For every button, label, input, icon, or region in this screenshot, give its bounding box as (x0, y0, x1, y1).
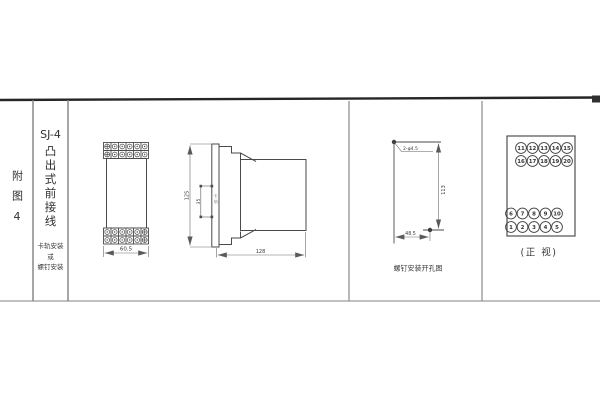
svg-text:14: 14 (552, 146, 560, 152)
svg-text:7: 7 (521, 211, 525, 217)
vertical-dimension: 113 (439, 144, 448, 229)
terminal-view-caption: (正 视) (521, 247, 558, 259)
rail-dim-label: 35 (196, 199, 202, 205)
svg-text:12: 12 (529, 146, 537, 152)
svg-text:17: 17 (529, 159, 537, 165)
figure-index-label: 附图4 (9, 170, 25, 232)
mounting-note-line: 或 (33, 252, 68, 263)
depth-dim-label: 128 (256, 249, 266, 255)
svg-text:3: 3 (532, 225, 536, 231)
svg-text:19: 19 (552, 159, 560, 165)
svg-text:2: 2 (521, 225, 525, 231)
drill-plan-caption: 螺钉安装开孔图 (394, 264, 443, 273)
svg-text:10: 10 (553, 211, 561, 217)
side-view-drawing: 125 35 卡 轨 128 (185, 144, 307, 258)
horizontal-dimension: 48.5 (395, 231, 430, 241)
scanned-figure-page: 60.5 125 (0, 0, 600, 400)
width-dim-label: 60.5 (120, 247, 133, 253)
svg-text:6: 6 (509, 211, 513, 217)
svg-text:18: 18 (540, 159, 548, 165)
terminal-circle: 8 (529, 208, 540, 219)
terminal-circle: 15 (562, 143, 573, 154)
svg-text:5: 5 (555, 225, 559, 231)
rail-label: 卡 轨 (213, 193, 219, 206)
relay-body-outline (107, 159, 147, 229)
type-vertical-label: 凸出式前接线 (43, 145, 59, 240)
terminal-circle: 12 (527, 143, 538, 154)
mounting-note-line: 卡轨安装 (33, 241, 68, 252)
terminal-circle: 9 (540, 208, 551, 219)
svg-text:11: 11 (517, 146, 525, 152)
table-grid (0, 96, 600, 302)
svg-text:13: 13 (540, 146, 548, 152)
svg-text:1: 1 (509, 225, 513, 231)
svg-text:8: 8 (532, 211, 536, 217)
svg-text:4: 4 (544, 225, 548, 231)
terminal-circle: 20 (562, 156, 573, 167)
terminal-circle: 14 (550, 143, 561, 154)
bottom-step-profile (219, 232, 241, 245)
terminal-circle: 17 (527, 156, 538, 167)
front-view-drawing: 60.5 (104, 143, 149, 258)
terminal-circle: 2 (517, 222, 528, 233)
height-dimension: 125 (185, 144, 212, 247)
terminal-circle: 10 (552, 208, 563, 219)
drill-plan-drawing: 2-φ4.5 113 48.5 螺钉安装开孔图 (392, 140, 447, 273)
svg-text:16: 16 (517, 159, 525, 165)
vertical-dim-label: 113 (441, 185, 447, 195)
terminal-circle: 11 (516, 143, 527, 154)
terminal-circle: 13 (539, 143, 550, 154)
bottom-terminal-block (104, 228, 149, 244)
width-dimension: 60.5 (104, 246, 149, 257)
svg-text:20: 20 (563, 159, 571, 165)
top-terminal-block (104, 143, 149, 159)
horizontal-dim-label: 48.5 (405, 231, 416, 237)
rail-dimension: 35 卡 轨 (196, 185, 219, 218)
terminal-view-drawing: 11 12 13 14 15 16 17 18 19 20 6 7 8 9 10… (506, 136, 575, 259)
terminal-circle: 4 (540, 222, 551, 233)
mounting-note-line: 螺钉安装 (33, 262, 68, 273)
page-edge-mark (592, 96, 600, 103)
svg-text:9: 9 (544, 211, 548, 217)
figure-title-cell: SJ-4 凸出式前接线 卡轨安装 或 螺钉安装 (33, 100, 68, 301)
holes-label: 2-φ4.5 (403, 146, 418, 152)
height-dim-label: 125 (185, 191, 191, 201)
terminal-circle: 16 (516, 156, 527, 167)
model-label: SJ-4 (33, 128, 68, 141)
terminal-circle: 19 (550, 156, 561, 167)
terminal-circle: 18 (539, 156, 550, 167)
terminal-circle: 3 (529, 222, 540, 233)
technical-drawing-canvas: 60.5 125 (0, 0, 600, 400)
top-wedge-line (241, 153, 257, 162)
terminal-circle: 5 (552, 222, 563, 233)
terminal-circle: 7 (517, 208, 528, 219)
figure-index-cell: 附图4 (0, 100, 33, 301)
case-profile (241, 160, 307, 231)
mounting-note: 卡轨安装 或 螺钉安装 (33, 241, 68, 273)
top-step-profile (219, 147, 241, 160)
svg-text:15: 15 (563, 146, 571, 152)
